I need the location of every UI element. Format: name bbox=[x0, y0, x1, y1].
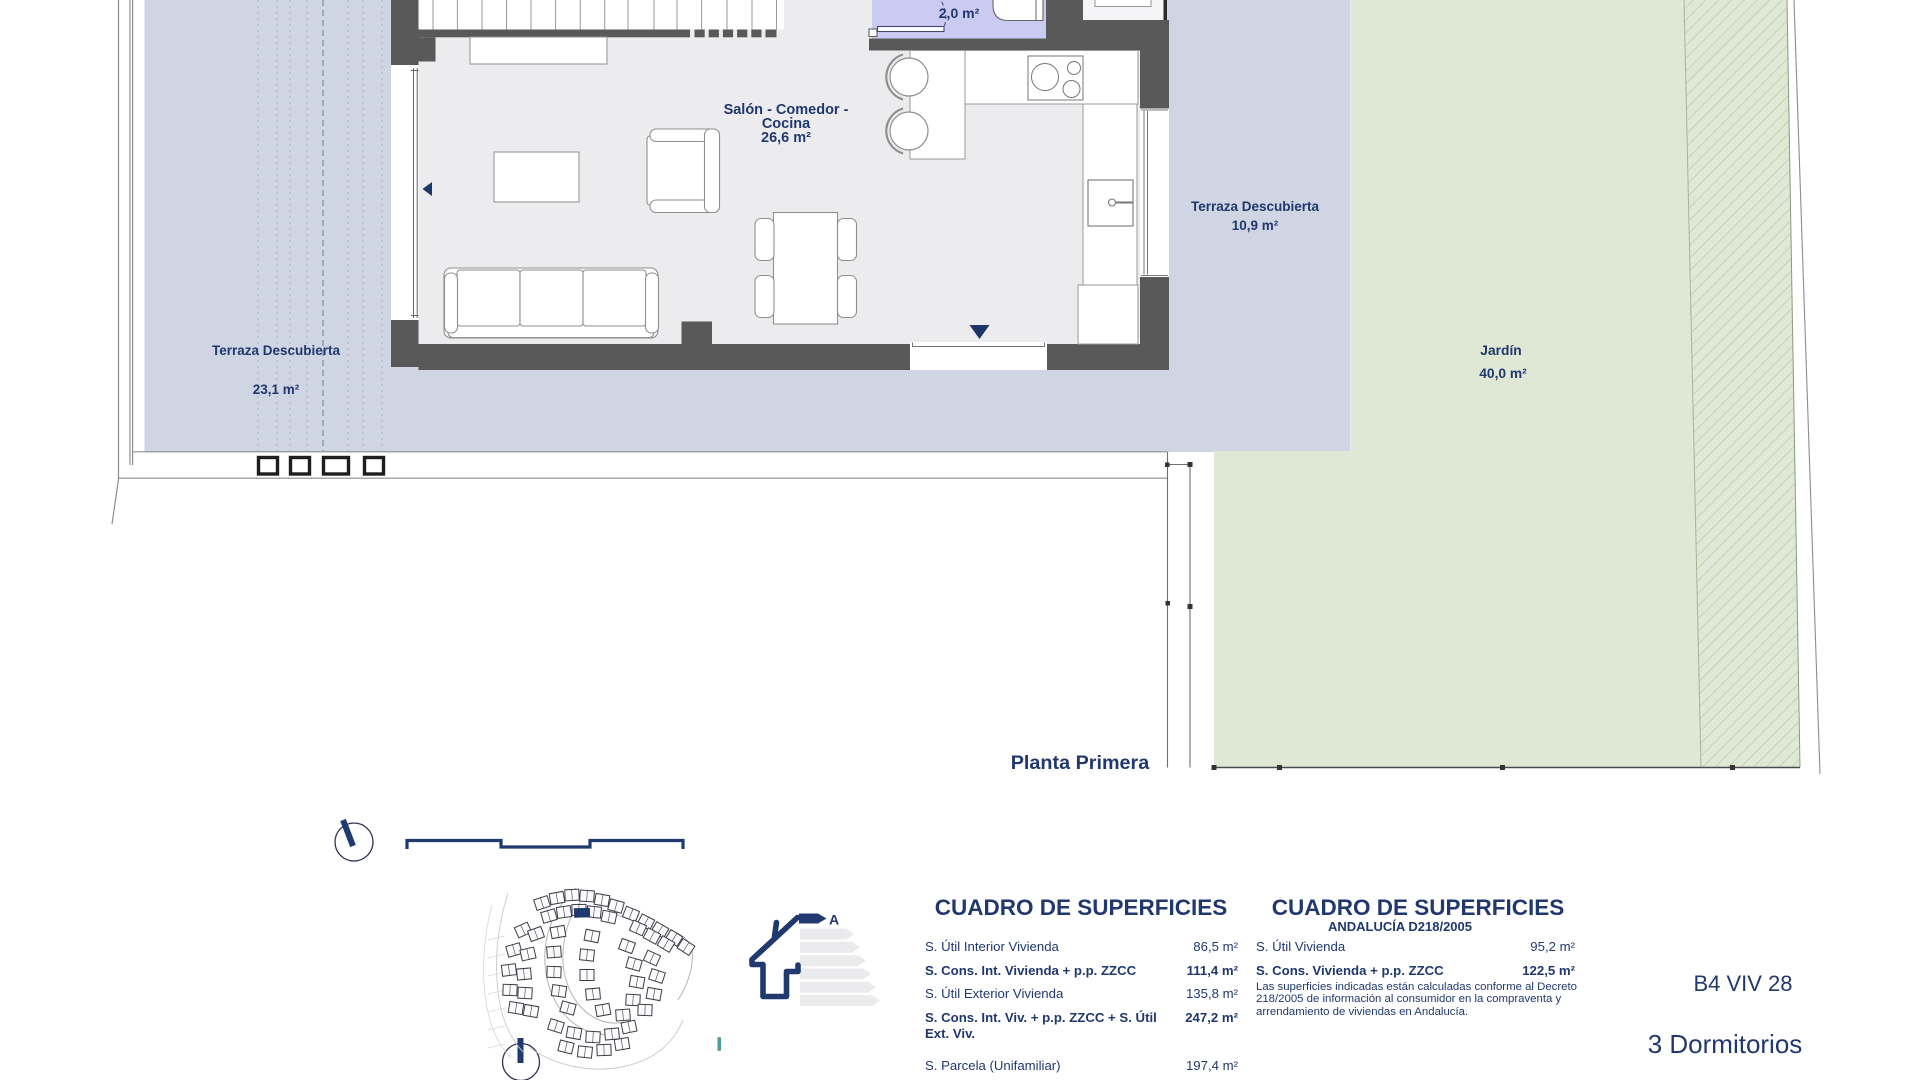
svg-text:A: A bbox=[829, 912, 839, 928]
